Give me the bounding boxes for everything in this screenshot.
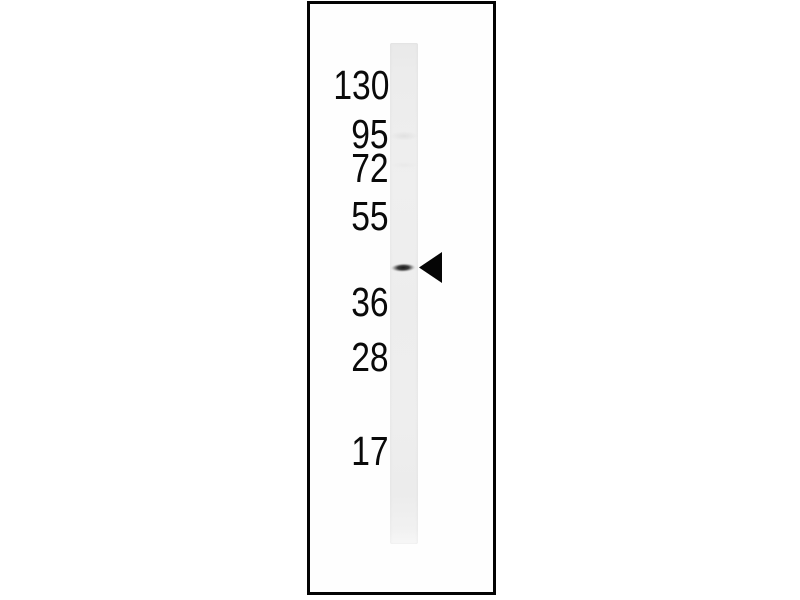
faint-marker-band-95 bbox=[390, 131, 418, 141]
mw-label-36: 36 bbox=[352, 280, 389, 324]
protein-band bbox=[389, 257, 419, 277]
faint-marker-band-72 bbox=[390, 161, 418, 169]
mw-label-130: 130 bbox=[333, 63, 389, 107]
gel-lane bbox=[390, 43, 418, 544]
mw-label-28: 28 bbox=[352, 335, 389, 379]
mw-label-17: 17 bbox=[352, 429, 389, 473]
mw-label-55: 55 bbox=[352, 194, 389, 238]
mw-label-72: 72 bbox=[352, 146, 389, 190]
figure-canvas: 130 95 72 55 36 28 17 bbox=[0, 0, 800, 600]
